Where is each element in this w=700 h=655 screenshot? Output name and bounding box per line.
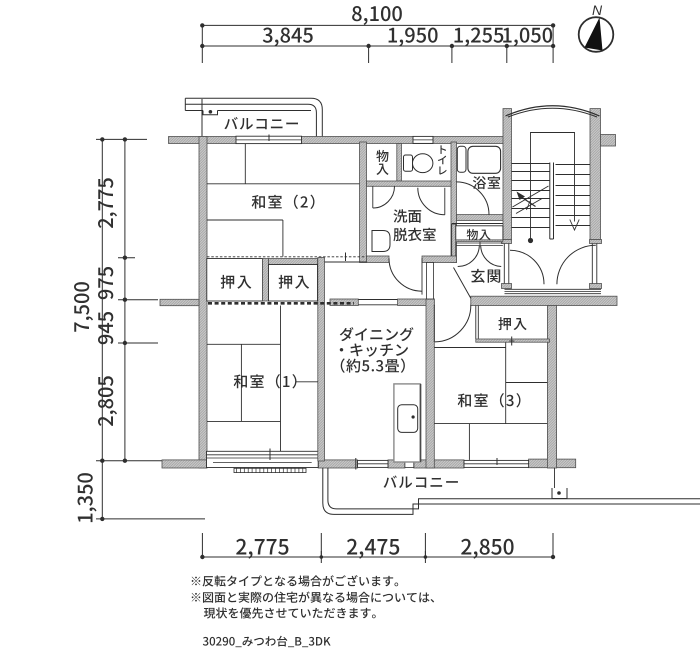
svg-text:N: N	[592, 2, 603, 18]
